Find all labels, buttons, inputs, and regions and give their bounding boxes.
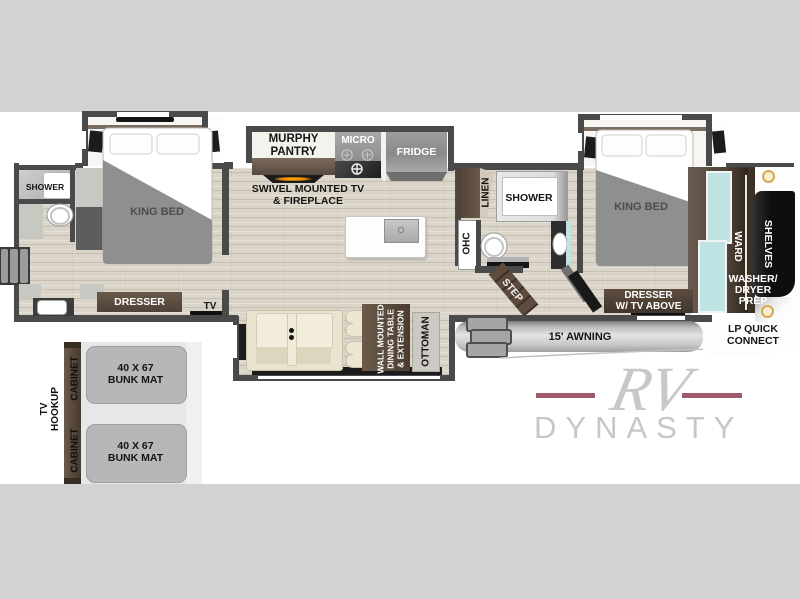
svg-text:DYNASTY: DYNASTY xyxy=(534,410,743,445)
